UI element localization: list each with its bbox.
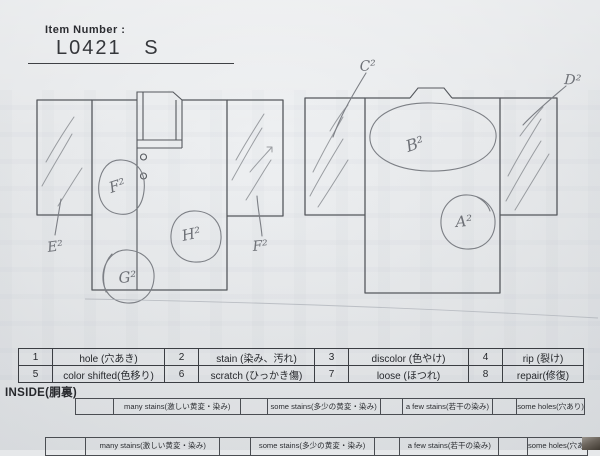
e2-leader-line (55, 199, 61, 235)
paper-crease (85, 299, 598, 318)
inside-section-title: INSIDE(胴裏) (5, 384, 77, 400)
defect-label-cell: discolor (色やけ) (349, 349, 469, 366)
grade-label-cell: some holes(穴あり) (528, 437, 588, 456)
defect-code-table: 1 hole (穴あき) 2 stain (染み、汚れ) 3 discolor … (18, 348, 584, 383)
front-collar-band (137, 92, 182, 148)
defect-label-cell: repair(修復) (503, 366, 584, 383)
defect-num-cell: 5 (19, 366, 53, 383)
c2-label: C² (359, 58, 377, 75)
back-collar (410, 88, 452, 98)
grade-checkbox-cell (499, 437, 528, 456)
defect-label-cell: loose (ほつれ) (349, 366, 469, 383)
grade-label-cell: a few stains(若干の染み) (400, 437, 499, 456)
defect-num-cell: 8 (469, 366, 503, 383)
defect-table-row-1: 1 hole (穴あき) 2 stain (染み、汚れ) 3 discolor … (19, 349, 584, 366)
grade-label-cell: some holes(穴あり) (517, 398, 585, 415)
defect-num-cell: 6 (165, 366, 199, 383)
grade-checkbox-cell (45, 437, 86, 456)
back-right-sleeve (500, 98, 557, 215)
defect-mark-f2-label: F² (106, 175, 128, 198)
photographed-inspection-sheet: { "colors": { "paper": "#e6e8ea", "print… (0, 0, 600, 450)
defect-mark-g2-label: G² (118, 267, 138, 287)
grade-label-cell: some stains(多少の黄変・染み) (268, 398, 381, 415)
grade-label-cell: a few stains(若干の染み) (403, 398, 492, 415)
defect-mark-h2-label: H² (179, 223, 202, 245)
defect-num-cell: 1 (19, 349, 53, 366)
grade-checkbox-cell (493, 398, 518, 415)
front-left-sleeve (37, 100, 92, 215)
grade-checkbox-cell (375, 437, 401, 456)
d2-leader-line (523, 86, 566, 125)
kimono-front-diagram: F² H² G² E² F² (37, 92, 283, 303)
defect-num-cell: 2 (165, 349, 199, 366)
grade-label-cell: some stains(多少の黄変・染み) (251, 437, 375, 456)
defect-label-cell: stain (染み、汚れ) (199, 349, 315, 366)
grade-checkbox-cell (220, 437, 251, 456)
bottom-partial-grade-row: many stains(激しい黄変・染み) some stains(多少の黄変・… (45, 437, 588, 456)
grade-label-cell: many stains(激しい黄変・染み) (86, 437, 220, 456)
snap-button-top (141, 154, 147, 160)
defect-mark-b2-ellipse (370, 103, 496, 171)
defect-mark-a2-label: A² (453, 212, 473, 232)
defect-num-cell: 7 (315, 366, 349, 383)
defect-table-row-2: 5 color shifted(色移り) 6 scratch (ひっかき傷) 7… (19, 366, 584, 383)
defect-num-cell: 4 (469, 349, 503, 366)
c2-leader-line (333, 73, 366, 137)
back-right-sleeve-hatching (506, 107, 549, 210)
inside-grade-row: many stains(激しい黄変・染み) some stains(多少の黄変・… (75, 398, 585, 415)
defect-label-cell: color shifted(色移り) (53, 366, 165, 383)
grade-checkbox-cell (241, 398, 268, 415)
grade-checkbox-cell (75, 398, 114, 415)
defect-mark-b2-label: B² (402, 132, 426, 156)
front-right-sleeve-hatching (232, 114, 272, 200)
back-left-sleeve (305, 98, 365, 215)
grade-checkbox-cell (381, 398, 404, 415)
front-left-sleeve-hatching (42, 117, 82, 206)
defect-num-cell: 3 (315, 349, 349, 366)
d2-label: D² (563, 72, 582, 89)
back-body (365, 98, 500, 293)
front-right-sleeve (227, 100, 283, 216)
e2-label: E² (45, 238, 64, 256)
kimono-back-diagram: B² A² C² D² (305, 58, 582, 293)
defect-label-cell: rip (裂け) (503, 349, 584, 366)
back-left-sleeve-hatching (310, 105, 348, 207)
f2-right-label: F² (251, 238, 269, 255)
grade-label-cell: many stains(激しい黄変・染み) (114, 398, 241, 415)
defect-label-cell: hole (穴あき) (53, 349, 165, 366)
defect-label-cell: scratch (ひっかき傷) (199, 366, 315, 383)
photo-dark-corner (582, 437, 600, 450)
